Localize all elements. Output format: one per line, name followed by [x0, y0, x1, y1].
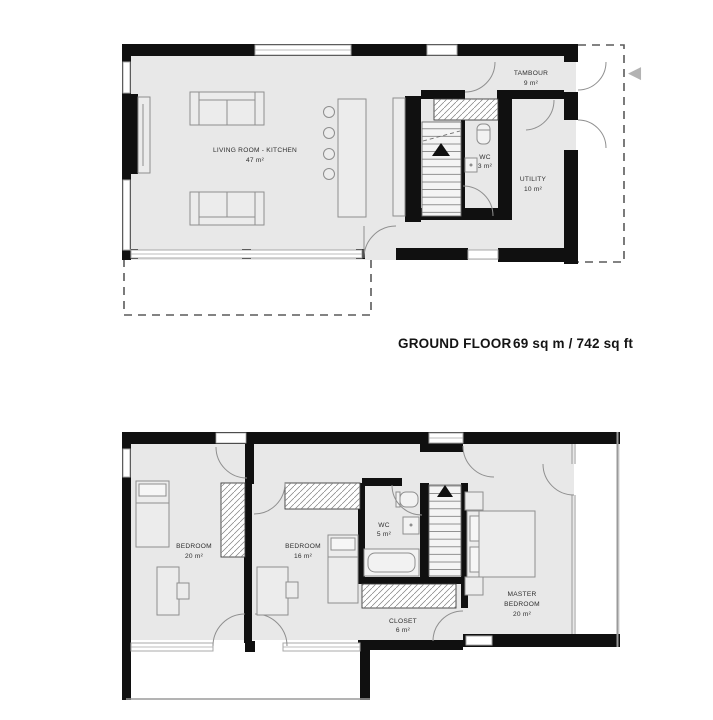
room-label-bedroom2: BEDROOM	[285, 543, 321, 550]
nightstand-symbol	[465, 492, 483, 510]
wardrobe-symbol-bedroom2	[285, 483, 360, 509]
stairs-symbol	[422, 122, 461, 216]
room-area-bedroom1: 20 m²	[185, 553, 204, 560]
room-area-bedroom2: 16 m²	[294, 553, 313, 560]
room-label-bedroom1: BEDROOM	[176, 543, 212, 550]
entry-door-swing-1	[578, 62, 606, 90]
room-area-tambour: 9 m²	[524, 80, 539, 87]
bed-symbol-bedroom2	[328, 535, 358, 603]
sofa-symbol	[190, 192, 264, 225]
ground-floor-caption-area: 69 sq m / 742 sq ft	[513, 336, 633, 351]
room-label-tambour: TAMBOUR	[514, 70, 548, 77]
sofa-symbol	[190, 92, 264, 125]
chair-symbol-bedroom2	[286, 582, 298, 598]
wardrobe-symbol-bedroom1	[221, 483, 245, 557]
master-balcony-area	[574, 444, 618, 634]
bed-symbol-bedroom1	[136, 481, 169, 547]
room-label-utility: UTILITY	[520, 176, 547, 183]
nightstand-symbol	[465, 577, 483, 595]
kitchen-counter-symbol	[393, 98, 405, 216]
window-left-upper	[123, 62, 130, 93]
room-area-closet: 6 m²	[396, 627, 411, 634]
window-left-bedroom1	[123, 449, 130, 477]
room-area-wc-first: 5 m²	[377, 531, 392, 538]
first-floor-area	[126, 436, 620, 640]
wardrobe-symbol-closet	[362, 584, 456, 608]
terrace-dashed-outline	[124, 259, 371, 315]
room-area-living-kitchen: 47 m²	[246, 157, 265, 164]
stairs-symbol	[429, 485, 461, 576]
room-label-master-line2: BEDROOM	[504, 601, 540, 608]
room-area-wc-ground: 3 m²	[478, 163, 493, 170]
tv-board-symbol	[138, 97, 150, 173]
floor-plan-drawing: LIVING ROOM - KITCHEN 47 m² TAMBOUR 9 m²…	[0, 0, 713, 720]
opening-top-bedroom1	[216, 433, 246, 443]
room-area-master: 20 m²	[513, 611, 532, 618]
window-top-hall	[427, 45, 457, 55]
window-bottom-utility	[468, 250, 498, 259]
room-label-living-kitchen: LIVING ROOM - KITCHEN	[213, 147, 297, 154]
window-bottom-master	[466, 636, 492, 645]
hall-wardrobe-symbol	[434, 99, 498, 120]
toilet-symbol	[477, 124, 490, 144]
ground-floor-caption-title: GROUND FLOOR	[398, 336, 511, 351]
window-left-lower	[123, 180, 130, 250]
ground-floor-plan: LIVING ROOM - KITCHEN 47 m² TAMBOUR 9 m²…	[122, 44, 633, 351]
carousel-prev-icon[interactable]: ◀	[628, 64, 641, 81]
kitchen-island-symbol	[338, 99, 366, 217]
chair-symbol-bedroom1	[177, 583, 189, 599]
first-floor-plan: BEDROOM 20 m² BEDROOM 16 m² WC 5 m² CLOS…	[122, 432, 620, 700]
desk-symbol-bedroom1	[157, 567, 179, 615]
room-label-master-line1: MASTER	[508, 591, 537, 598]
room-label-wc-first: WC	[378, 522, 390, 529]
room-area-utility: 10 m²	[524, 186, 543, 193]
toilet-symbol	[400, 492, 418, 507]
entry-door-swing-2	[578, 120, 606, 148]
desk-symbol-bedroom2	[257, 567, 288, 615]
room-label-closet: CLOSET	[389, 618, 417, 625]
room-label-wc-ground: WC	[479, 154, 491, 161]
